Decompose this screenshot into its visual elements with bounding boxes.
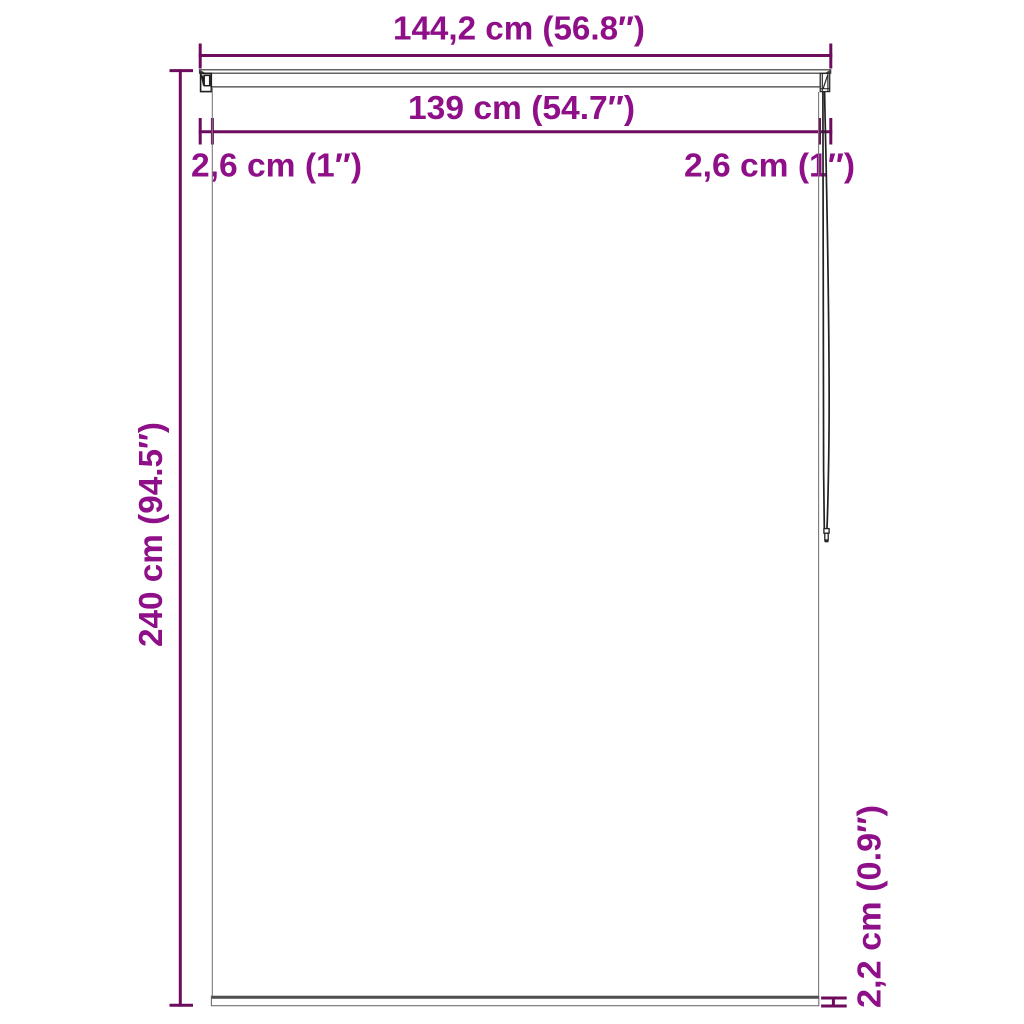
svg-text:144,2 cm (56.8″): 144,2 cm (56.8″) [393,9,645,46]
svg-text:2,6 cm (1″): 2,6 cm (1″) [191,147,362,184]
svg-text:139 cm (54.7″): 139 cm (54.7″) [408,89,635,126]
svg-text:240 cm (94.5″): 240 cm (94.5″) [132,422,169,647]
svg-text:2,2 cm (0.9″): 2,2 cm (0.9″) [851,805,888,1008]
svg-text:2,6 cm (1″): 2,6 cm (1″) [684,147,855,184]
